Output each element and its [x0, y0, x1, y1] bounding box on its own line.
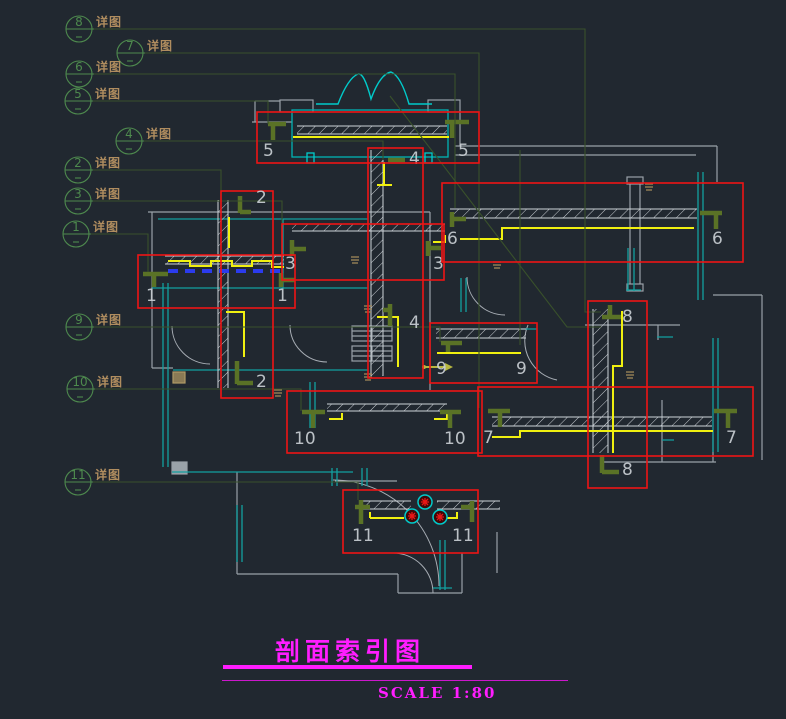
detail-bubble-2[interactable]: 2详图 — [65, 155, 121, 183]
title-underline-thick — [223, 665, 472, 669]
callout-number: 8 — [622, 307, 633, 327]
bubble-number: 4 — [125, 127, 133, 141]
leader-line — [91, 101, 268, 124]
bubble-detail-label: 详图 — [147, 38, 173, 53]
detail-bubble-10[interactable]: 10详图 — [67, 374, 123, 402]
bubble-number: 8 — [75, 15, 83, 29]
title-underline-thin — [222, 680, 568, 681]
bubble-detail-label: 详图 — [96, 59, 122, 74]
callout-number: 4 — [409, 149, 420, 169]
callout-rect[interactable] — [282, 224, 444, 280]
bubble-detail-label: 详图 — [95, 467, 121, 482]
detail-bubble-5[interactable]: 5详图 — [65, 86, 121, 114]
detail-bubble-4[interactable]: 4详图 — [116, 126, 172, 154]
bubble-detail-label: 详图 — [146, 126, 172, 141]
callout-number: 2 — [256, 188, 267, 208]
callout-number: 11 — [352, 526, 374, 546]
callout-number: 7 — [483, 428, 494, 448]
callout-number: 2 — [256, 372, 267, 392]
callout-number: 5 — [458, 141, 469, 161]
bubble-detail-label: 详图 — [93, 219, 119, 234]
detail-bubble-1[interactable]: 1详图 — [63, 219, 119, 247]
leader-line — [91, 482, 358, 500]
callout-number: 3 — [285, 254, 296, 274]
bubble-detail-label: 详图 — [95, 155, 121, 170]
curtain-scallop — [316, 72, 432, 104]
bubble-number: 2 — [74, 156, 82, 170]
detail-bubble-7[interactable]: 7详图 — [117, 38, 173, 66]
leader-line — [89, 234, 148, 272]
bubble-number: 6 — [75, 60, 83, 74]
wall-pier — [173, 372, 185, 383]
bubble-number: 9 — [75, 313, 83, 327]
callout-number: 6 — [447, 229, 458, 249]
callout-number: 7 — [726, 428, 737, 448]
plant-symbol — [405, 495, 447, 524]
bubble-number: 1 — [72, 220, 80, 234]
bubble-detail-label: 详图 — [95, 86, 121, 101]
detail-bubble-9[interactable]: 9详图 — [66, 312, 122, 340]
leader-line — [92, 327, 440, 342]
leader-line — [91, 201, 282, 226]
scale-label: SCALE 1:80 — [378, 684, 496, 702]
section-callout-box-10[interactable]: 1010 — [287, 391, 482, 453]
callout-number: 10 — [294, 429, 316, 449]
bubble-number: 10 — [72, 375, 87, 389]
bubble-detail-label: 详图 — [96, 312, 122, 327]
bubble-number: 7 — [126, 39, 134, 53]
callout-number: 11 — [452, 526, 474, 546]
callout-number: 4 — [409, 313, 420, 333]
callout-number: 8 — [622, 460, 633, 480]
callout-number: 1 — [277, 286, 288, 306]
callout-number: 9 — [436, 359, 447, 379]
section-index-plan-drawing[interactable]: 11223344556677889910101111 8详图7详图6详图5详图4… — [0, 0, 786, 719]
bubble-detail-label: 详图 — [96, 14, 122, 29]
callout-number: 9 — [516, 359, 527, 379]
section-callout-box-3[interactable]: 33 — [282, 224, 444, 280]
callout-number: 10 — [444, 429, 466, 449]
detail-bubble-8[interactable]: 8详图 — [66, 14, 122, 42]
bubble-number: 3 — [74, 187, 82, 201]
detail-bubble-3[interactable]: 3详图 — [65, 186, 121, 214]
callout-number: 1 — [146, 286, 157, 306]
detail-bubble-11[interactable]: 11详图 — [65, 467, 121, 495]
bubble-number: 11 — [70, 468, 85, 482]
callout-number: 5 — [263, 141, 274, 161]
leader-line — [93, 389, 301, 411]
detail-bubble-6[interactable]: 6详图 — [66, 59, 122, 87]
bubble-detail-label: 详图 — [97, 374, 123, 389]
bubble-detail-label: 详图 — [95, 186, 121, 201]
drawing-title: 剖面索引图 — [244, 632, 456, 668]
callout-number: 6 — [712, 229, 723, 249]
cad-viewport[interactable]: 11223344556677889910101111 8详图7详图6详图5详图4… — [0, 0, 786, 719]
bubble-number: 5 — [74, 87, 82, 101]
